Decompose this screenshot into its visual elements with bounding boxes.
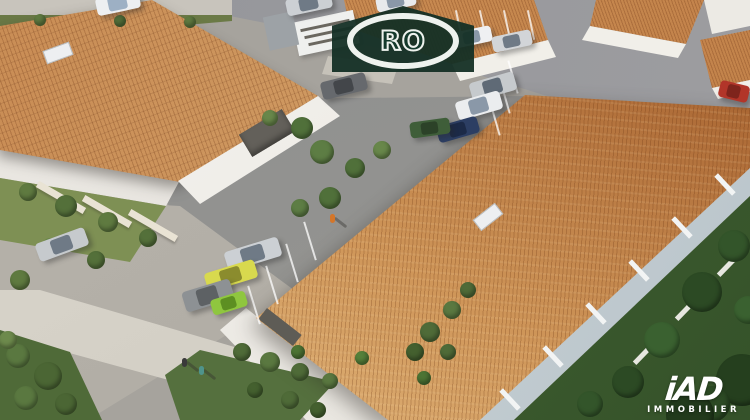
- person: [199, 366, 204, 375]
- iad-logo-name: iAD: [646, 375, 742, 404]
- aerial-render-image: RO iAD IMMOBILIER: [0, 0, 750, 420]
- person-shadow: [203, 369, 217, 381]
- person-shadow: [186, 361, 200, 373]
- person: [182, 358, 187, 367]
- person: [330, 214, 335, 223]
- ro-logo-ellipse: RO: [347, 13, 459, 69]
- ro-logo-text: RO: [380, 28, 426, 55]
- iad-immobilier-logo: iAD IMMOBILIER: [647, 375, 740, 415]
- person-shadow: [334, 217, 348, 229]
